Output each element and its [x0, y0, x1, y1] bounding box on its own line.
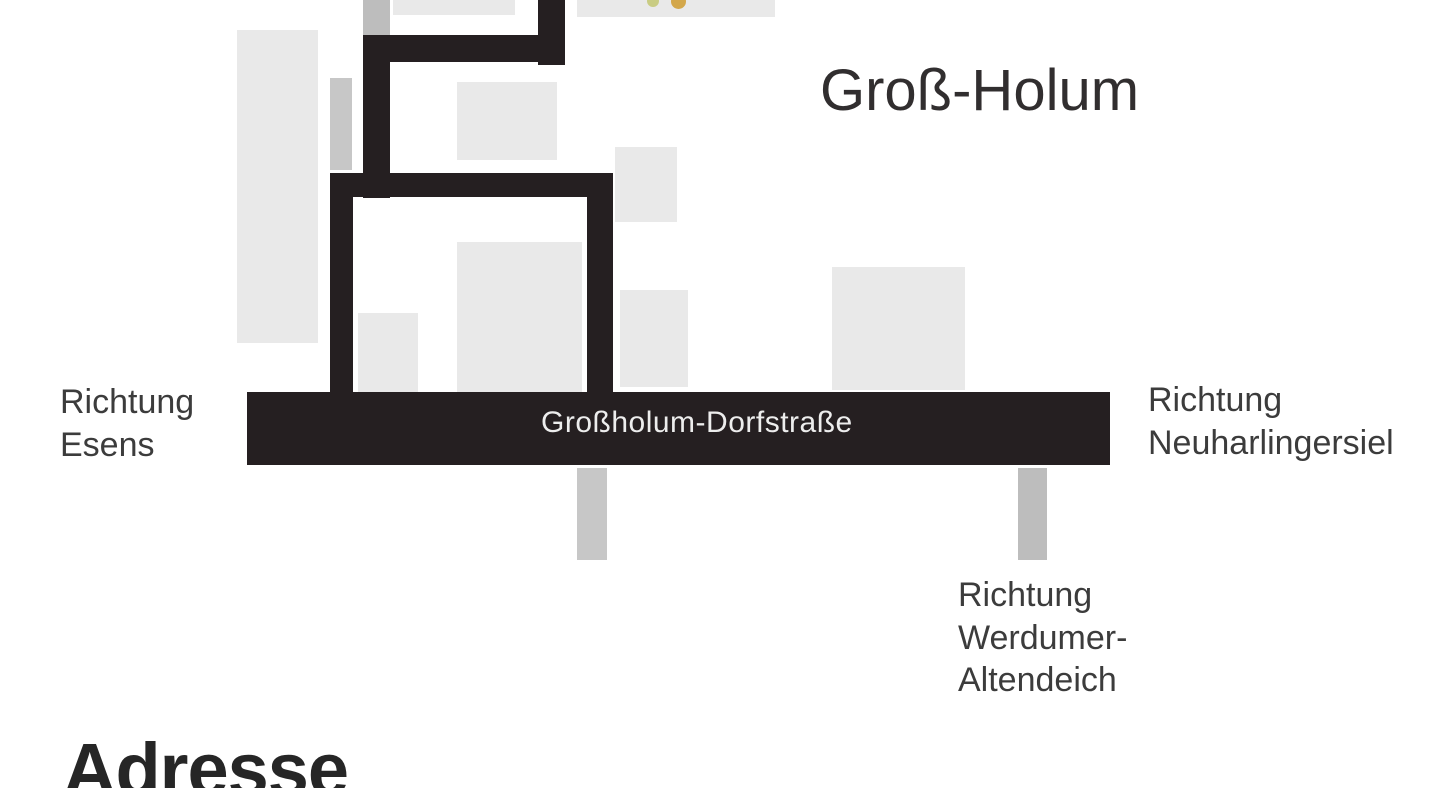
building-block: [457, 242, 582, 392]
direction-label-esens: Richtung Esens: [60, 381, 194, 466]
route-road-segment: [363, 35, 565, 62]
address-section-heading: Adresse: [63, 727, 348, 788]
direction-label-werdumer-altendeich: Richtung Werdumer- Altendeich: [958, 574, 1127, 702]
building-block: [393, 0, 515, 15]
direction-label-line: Richtung: [958, 574, 1127, 617]
direction-label-line: Richtung: [1148, 379, 1394, 422]
building-block: [457, 82, 557, 160]
direction-label-line: Richtung: [60, 381, 194, 424]
side-road-south-east: [1018, 468, 1047, 560]
side-road-south-west: [577, 468, 607, 560]
building-block: [620, 290, 688, 387]
building-block: [832, 267, 965, 390]
directions-map: Großholum-Dorfstraße Groß-Holum Richtung…: [0, 0, 1440, 788]
side-road-stub: [363, 0, 390, 35]
direction-label-line: Werdumer-: [958, 617, 1127, 660]
direction-label-line: Esens: [60, 424, 194, 467]
main-road-name-label: Großholum-Dorfstraße: [541, 406, 853, 440]
route-road-segment: [587, 173, 613, 392]
direction-label-neuharlingersiel: Richtung Neuharlingersiel: [1148, 379, 1394, 464]
direction-label-line: Altendeich: [958, 659, 1127, 702]
building-block: [615, 147, 677, 222]
side-road-stub: [330, 78, 352, 170]
building-block: [358, 313, 418, 392]
place-name-title: Groß-Holum: [820, 56, 1139, 126]
route-road-segment: [330, 173, 613, 197]
route-road-segment: [330, 173, 353, 392]
route-road-segment: [538, 0, 565, 65]
building-block: [237, 30, 318, 343]
direction-label-line: Neuharlingersiel: [1148, 422, 1394, 465]
